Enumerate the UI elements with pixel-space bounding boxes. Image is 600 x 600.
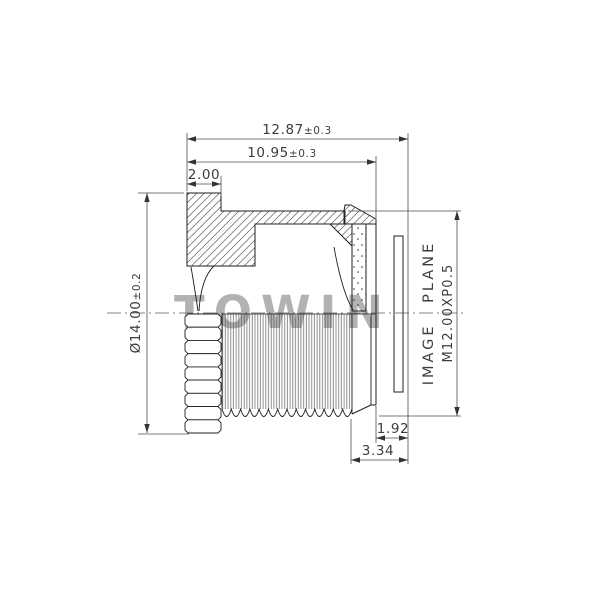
section-flange-and-wall <box>187 193 376 266</box>
dim-barrel-length-label: 10.95±0.3 <box>247 145 317 161</box>
lens-element-glass <box>352 224 366 311</box>
sensor-cover-glass <box>394 236 403 392</box>
technical-drawing: TOWIN <box>0 0 600 600</box>
knurled-ring <box>185 314 221 433</box>
dim-overall-length-label: 12.87±0.3 <box>262 122 332 138</box>
image-plane-label: IMAGE PLANE <box>421 241 437 386</box>
lens-drawing-canvas: TOWIN <box>0 0 600 600</box>
dim-outer-diameter-label: Ø14.00±0.2 <box>128 273 144 354</box>
dim-glass-to-image-label: 3.34 <box>362 443 394 459</box>
thread-profile-wave <box>222 409 352 417</box>
dim-back-focus-label: 1.92 <box>377 421 409 437</box>
thread-spec-label: M12.00XP0.5 <box>441 263 456 362</box>
thread-section <box>222 314 352 417</box>
retainer-section <box>330 224 352 246</box>
dim-flange-thickness-label: 2.00 <box>188 167 220 183</box>
front-lip-section <box>344 205 376 224</box>
